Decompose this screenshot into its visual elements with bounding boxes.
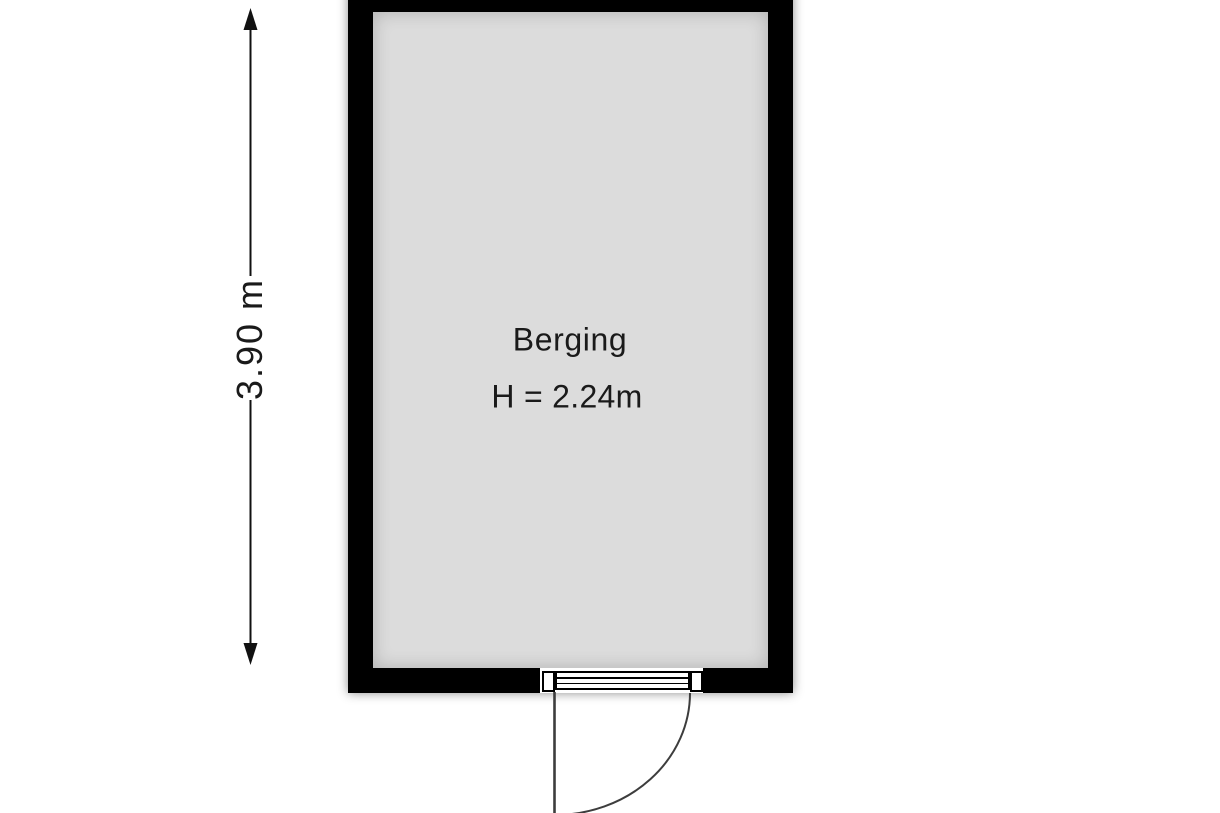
ceiling-height-label: H = 2.24m bbox=[491, 379, 642, 416]
dimension-label: 3.90 m bbox=[229, 278, 271, 400]
door-swing bbox=[555, 692, 691, 813]
door-jamb-right bbox=[690, 671, 703, 692]
floorplan-canvas: Berging H = 2.24m 3.90 m bbox=[0, 0, 1220, 813]
door-jamb-left bbox=[542, 671, 555, 692]
door-threshold-icon bbox=[555, 671, 690, 690]
dimension-arrow-up-icon bbox=[244, 8, 258, 30]
door-swing-arc bbox=[555, 693, 691, 813]
threshold-line bbox=[557, 677, 688, 679]
threshold-line bbox=[557, 683, 688, 685]
room-name-label: Berging bbox=[513, 322, 628, 359]
dimension-arrow-down-icon bbox=[244, 643, 258, 665]
